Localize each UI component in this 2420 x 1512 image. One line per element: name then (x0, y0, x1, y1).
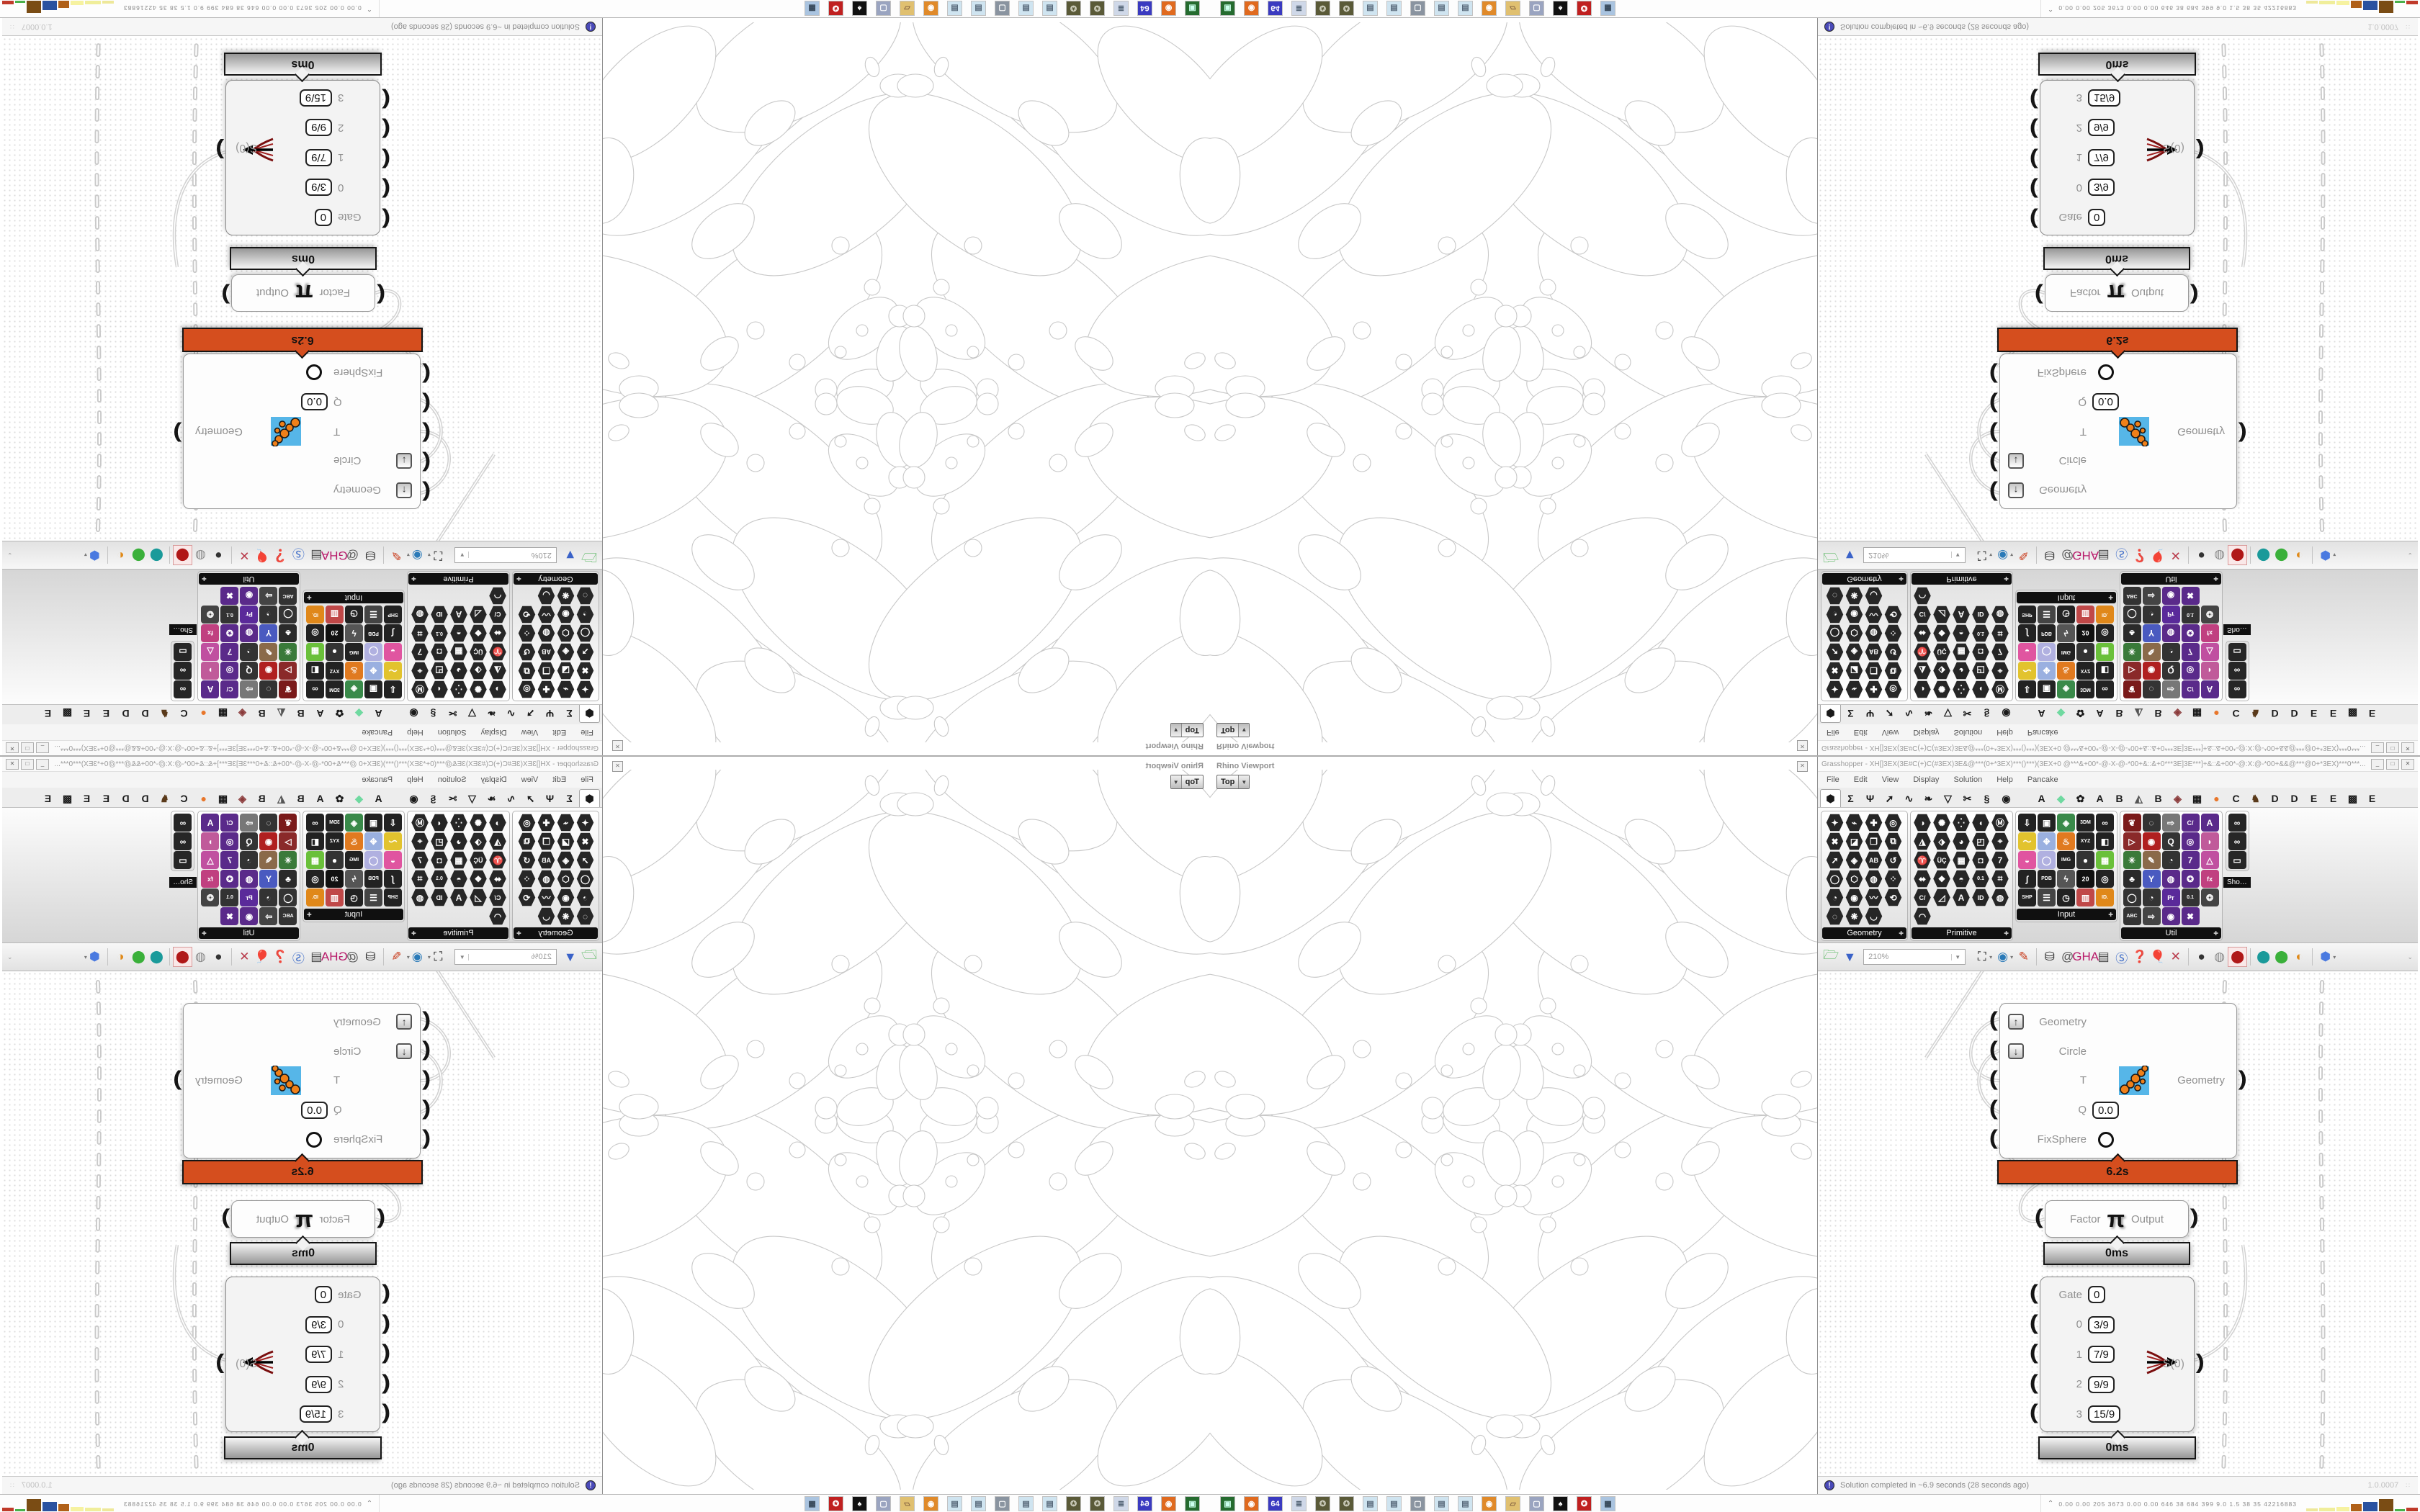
palette-icon[interactable]: ▥ (2076, 606, 2094, 624)
fixsphere-component[interactable]: ( ↑ Geometry ( ↓ Circle ( T (183, 354, 421, 509)
palette-icon[interactable]: ◰ (431, 662, 449, 680)
zoom-combobox[interactable]: 210% ▼ (1863, 949, 1966, 965)
palette-icon[interactable]: ◯ (1826, 870, 1844, 888)
toolbar-icon[interactable]: ❓ (272, 948, 290, 966)
palette-icon[interactable]: ▣ (2038, 680, 2056, 698)
palette-icon[interactable]: Ⓜ (411, 680, 429, 698)
palette-icon[interactable]: ⇨ (241, 814, 259, 832)
palette-group-label[interactable]: Primitive✚ (1912, 573, 2012, 585)
input-hook[interactable]: ( (2035, 282, 2043, 306)
gate-row-value[interactable]: 0 (2088, 1286, 2105, 1303)
stream-gate-component[interactable]: (Gate0(03/9(17/9(29/9(315/9 S(0) ) (2040, 80, 2195, 235)
palette-icon[interactable]: ➚ (576, 643, 594, 661)
stream-gate-component[interactable]: (Gate0(03/9(17/9(29/9(315/9 S(0) ) (225, 1277, 380, 1432)
tab-intersect[interactable]: ✂ (443, 790, 462, 807)
palette-group-label[interactable]: Geometry✚ (1822, 927, 1906, 939)
palette-icon[interactable]: △ (2201, 643, 2219, 661)
palette-icon[interactable]: 〰 (537, 888, 555, 906)
palette-icon[interactable]: Pr (2162, 606, 2180, 624)
palette-icon[interactable]: ⬌ (489, 870, 507, 888)
pi-component[interactable]: ( Factor π Output ) (231, 274, 375, 312)
palette-icon[interactable]: ❖ (1933, 870, 1951, 888)
palette-icon[interactable]: ◎ (2096, 870, 2114, 888)
palette-icon[interactable]: 〜 (384, 662, 402, 680)
taskbar-app-icon[interactable]: ≣ (1291, 1, 1307, 16)
taskbar-app-icon[interactable]: ▤ (1018, 1496, 1034, 1511)
maximize-button[interactable]: □ (2386, 743, 2399, 754)
tab-curve[interactable]: ∿ (1899, 705, 1919, 722)
toolbar-icon[interactable]: ✕ (236, 948, 254, 966)
toolbar-icon[interactable]: ⬢ (2316, 546, 2334, 564)
tab-curve[interactable]: ∿ (1899, 790, 1919, 807)
palette-icon[interactable]: ❋ (557, 907, 575, 925)
toolbar-icon[interactable]: ● (2192, 948, 2210, 966)
palette-icon[interactable]: ID. (2096, 888, 2114, 906)
palette-icon[interactable]: ◔ (1826, 888, 1844, 906)
palette-icon[interactable]: 〰 (1865, 888, 1883, 906)
palette-icon[interactable]: ⧉ (518, 662, 536, 680)
expand-icon[interactable]: ✚ (1899, 930, 1904, 937)
taskbar-app-icon[interactable]: 64 (1137, 1496, 1152, 1511)
palette-icon[interactable]: ID (431, 606, 449, 624)
taskbar-app-icon[interactable]: ✪ (1339, 1496, 1354, 1511)
tab-plugin[interactable]: A (310, 790, 330, 807)
taskbar-app-icon[interactable]: ✪ (1066, 1, 1081, 16)
palette-icon[interactable]: ∫ (2018, 870, 2036, 888)
chevron-down-icon[interactable]: ▼ (460, 954, 469, 960)
tab-display[interactable]: ◉ (404, 705, 423, 722)
palette-icon[interactable]: 7 (221, 643, 239, 661)
toolbar-icon[interactable]: Ⓢ (2112, 948, 2130, 966)
input-hook[interactable]: ( (2030, 147, 2038, 171)
taskbar-app-icon[interactable]: ♠ (852, 1, 867, 16)
palette-icon[interactable]: ◧ (306, 832, 324, 850)
palette-icon[interactable]: ◷ (2057, 888, 2075, 906)
chevron-down-icon[interactable]: ▼ (460, 552, 469, 559)
tab-plugin[interactable]: ◆ (349, 790, 369, 807)
menu-item-file[interactable]: File (1827, 728, 1839, 737)
palette-icon[interactable]: ♣ (2123, 624, 2141, 642)
open-file-icon[interactable]: 🗁 (581, 544, 597, 566)
taskbar-app-icon[interactable]: ◉ (923, 1, 938, 16)
palette-icon[interactable]: ▦ (2096, 643, 2114, 661)
palette-icon[interactable]: ◓ (1953, 870, 1971, 888)
palette-icon[interactable]: fx (2201, 624, 2219, 642)
palette-icon[interactable]: C/ (2182, 814, 2200, 832)
toolbar-icon[interactable]: ▤ (308, 546, 326, 564)
palette-icon[interactable]: ⇩ (2018, 814, 2036, 832)
toolbar-icon[interactable]: ▤ (2094, 546, 2112, 564)
palette-icon[interactable]: ❒ (537, 662, 555, 680)
expand-icon[interactable]: ✚ (411, 576, 416, 582)
taskbar-app-icon[interactable]: ◉ (1482, 1, 1497, 16)
close-icon[interactable]: ✕ (612, 761, 623, 772)
palette-icon[interactable]: ✺ (470, 680, 488, 698)
palette-icon[interactable]: Ⓜ (1991, 814, 2009, 832)
palette-icon[interactable]: ÜÇ (1933, 643, 1951, 661)
palette-icon[interactable]: ▷ (2123, 662, 2141, 680)
palette-icon[interactable]: ◑ (489, 814, 507, 832)
taskbar-app-icon[interactable]: ▤ (1363, 1496, 1378, 1511)
input-hook[interactable]: ( (2030, 1311, 2038, 1335)
zoom-combobox[interactable]: 210% ▼ (1863, 547, 1966, 563)
palette-icon[interactable]: ✪ (2182, 624, 2200, 642)
palette-icon[interactable]: ⌗ (1991, 624, 2009, 642)
palette-icon[interactable]: ◯ (279, 606, 297, 624)
tab-plugin[interactable]: ◆ (349, 705, 369, 722)
toolbar-dropdown-icon[interactable]: ▾ (407, 552, 410, 559)
input-hook[interactable]: ( (382, 1341, 390, 1365)
palette-icon[interactable]: Y (260, 624, 278, 642)
taskbar-app-icon[interactable]: ▱ (1505, 1496, 1520, 1511)
output-hook[interactable]: ) (2196, 1351, 2205, 1374)
palette-icon[interactable]: ∫ (2018, 624, 2036, 642)
palette-icon[interactable]: XYZ (2076, 832, 2094, 850)
viewport-name-button[interactable]: Top ▼ (1170, 723, 1204, 737)
palette-icon[interactable]: ● (326, 643, 344, 661)
grasshopper-canvas[interactable]: ( ↑ Geometry ( ↓ Circle ( T (1818, 971, 2418, 1476)
tab-plugin[interactable]: B (2110, 790, 2129, 807)
palette-icon[interactable]: ◕ (450, 832, 468, 850)
expand-icon[interactable]: ✚ (307, 912, 312, 918)
palette-icon[interactable]: ☰ (2038, 606, 2056, 624)
palette-icon[interactable]: ▣ (2038, 814, 2056, 832)
gate-row-value[interactable]: 15/9 (2088, 1405, 2120, 1423)
palette-icon[interactable]: ◗ (2201, 662, 2219, 680)
palette-icon[interactable]: ▦ (450, 643, 468, 661)
toolbar-overflow-icon[interactable]: ⌄ (7, 953, 13, 961)
palette-icon[interactable]: ◠ (489, 907, 507, 925)
palette-icon[interactable]: ♨ (345, 662, 363, 680)
save-file-icon[interactable]: ▼ (564, 548, 577, 563)
palette-icon[interactable]: ⟲ (518, 606, 536, 624)
input-hook[interactable]: ( (382, 1311, 390, 1335)
taskbar-app-icon[interactable]: ✪ (828, 1, 843, 16)
palette-icon[interactable]: ▷ (2123, 832, 2141, 850)
palette-icon[interactable]: ◕ (1953, 832, 1971, 850)
tab-plugin[interactable]: D (116, 790, 135, 807)
palette-icon[interactable]: ✦ (1826, 680, 1844, 698)
palette-icon[interactable]: ⁘ (1884, 870, 1902, 888)
palette-icon[interactable]: 7 (2182, 851, 2200, 869)
taskbar-app-icon[interactable]: ▣ (1185, 1496, 1200, 1511)
tab-sets[interactable]: Ψ (1860, 790, 1880, 807)
palette-icon[interactable]: ◉ (2162, 907, 2180, 925)
palette-icon[interactable]: ◯ (576, 624, 594, 642)
palette-icon[interactable]: ✖ (2182, 907, 2200, 925)
palette-icon[interactable]: 7 (2182, 643, 2200, 661)
gate-row-value[interactable]: 7/9 (2088, 1346, 2115, 1363)
tab-transform[interactable]: § (1977, 790, 1996, 807)
tab-display[interactable]: ◉ (404, 790, 423, 807)
gate-row-value[interactable]: 0 (315, 1286, 332, 1303)
palette-icon[interactable]: ϟ (2057, 870, 2075, 888)
palette-icon[interactable]: ◷ (345, 888, 363, 906)
palette-icon[interactable]: ❂ (202, 606, 220, 624)
palette-icon[interactable]: ✪ (2182, 870, 2200, 888)
chevron-down-icon[interactable]: ▼ (1238, 724, 1249, 737)
toolbar-icon[interactable]: ✎ (2015, 948, 2033, 966)
palette-icon[interactable]: ◯ (364, 643, 382, 661)
taskbar-app-icon[interactable]: ✪ (1090, 1, 1105, 16)
tab-plugin[interactable]: B (291, 705, 310, 722)
toolbar-dropdown-icon[interactable]: ▾ (2010, 954, 2013, 960)
input-hook[interactable]: ( (422, 1126, 431, 1150)
expand-icon[interactable]: ✚ (1899, 576, 1904, 582)
palette-icon[interactable]: ⬗ (1933, 662, 1951, 680)
output-hook[interactable]: ) (2190, 1206, 2199, 1230)
palette-icon[interactable]: XYZ (2076, 662, 2094, 680)
palette-icon[interactable]: ∞ (174, 680, 192, 698)
boolean-port-icon[interactable] (306, 1132, 322, 1148)
toolbar-icon[interactable]: 🎈 (254, 546, 272, 564)
palette-icon[interactable]: Q (241, 662, 259, 680)
input-hook[interactable]: ( (2030, 1371, 2038, 1395)
taskbar-app-icon[interactable]: ▦ (805, 1, 820, 16)
palette-icon[interactable]: SHP (2018, 888, 2036, 906)
palette-icon[interactable]: ◉ (1845, 606, 1863, 624)
palette-icon[interactable]: ↺ (518, 851, 536, 869)
palette-icon[interactable]: ◈ (2057, 680, 2075, 698)
tab-mesh[interactable]: ▽ (462, 705, 482, 722)
tab-plugin[interactable]: E (77, 790, 97, 807)
palette-icon[interactable]: 0.1 (2182, 606, 2200, 624)
palette-icon[interactable]: SHP (2018, 606, 2036, 624)
tab-plugin[interactable]: D (2265, 790, 2285, 807)
boolean-port-icon[interactable] (2098, 1132, 2114, 1148)
palette-icon[interactable]: ⌁ (557, 680, 575, 698)
palette-icon[interactable]: ✳ (2123, 643, 2141, 661)
tab-plugin[interactable]: A (310, 705, 330, 722)
palette-icon[interactable]: ◔ (576, 606, 594, 624)
palette-icon[interactable]: ⇨ (241, 680, 259, 698)
resize-grip-icon[interactable]: ∷ (2406, 1482, 2411, 1490)
palette-icon[interactable]: △ (202, 851, 220, 869)
toolbar-icon[interactable]: ⬢ (86, 948, 104, 966)
tab-plugin[interactable]: ◈ (233, 705, 252, 722)
palette-icon[interactable]: A (202, 814, 220, 832)
tab-vector[interactable]: ➚ (1880, 790, 1899, 807)
palette-icon[interactable]: ◰ (1972, 832, 1990, 850)
tab-plugin[interactable]: B (291, 790, 310, 807)
taskbar-app-icon[interactable]: ✪ (828, 1496, 843, 1511)
palette-icon[interactable]: 〰 (1865, 606, 1883, 624)
toolbar-icon[interactable]: GHA (2076, 546, 2094, 564)
taskbar-app-icon[interactable]: ✪ (1339, 1, 1354, 16)
palette-icon[interactable]: ϟ (345, 870, 363, 888)
tab-plugin[interactable]: C (2226, 705, 2246, 722)
output-hook[interactable]: ) (215, 138, 224, 161)
tab-plugin[interactable]: B (252, 705, 272, 722)
pi-component[interactable]: ( Factor π Output ) (231, 1200, 375, 1238)
palette-icon[interactable]: ◧ (2096, 662, 2114, 680)
palette-icon[interactable]: ▥ (326, 888, 344, 906)
expand-icon[interactable]: ✚ (2108, 912, 2113, 918)
resize-grip-icon[interactable]: ∷ (9, 23, 14, 31)
taskbar-app-icon[interactable]: ▤ (1363, 1, 1378, 16)
output-hook[interactable]: ) (2238, 1068, 2247, 1092)
chevron-down-icon[interactable]: ▼ (1951, 954, 1960, 960)
palette-icon[interactable]: ◎ (2096, 624, 2114, 642)
arrow-down-button[interactable]: ↓ (2008, 453, 2024, 469)
palette-icon[interactable]: ABC (279, 587, 297, 605)
palette-icon[interactable]: ◕ (1953, 662, 1971, 680)
palette-icon[interactable]: XYZ (326, 832, 344, 850)
palette-icon[interactable]: ⬌ (1914, 870, 1932, 888)
palette-icon[interactable]: 0.1 (1972, 870, 1990, 888)
input-hook[interactable]: ( (382, 117, 390, 141)
palette-icon[interactable]: PDB (2038, 624, 2056, 642)
toolbar-icon[interactable]: ⛶ (1973, 948, 1991, 966)
input-hook[interactable]: ( (422, 450, 431, 474)
palette-icon[interactable]: ◑ (489, 680, 507, 698)
palette-icon[interactable]: ID. (2096, 606, 2114, 624)
zoom-combobox[interactable]: 210% ▼ (454, 949, 557, 965)
palette-icon[interactable]: ❂ (2201, 888, 2219, 906)
tab-plugin[interactable]: ▩ (2343, 705, 2362, 722)
palette-icon[interactable]: IMG (345, 851, 363, 869)
expand-icon[interactable]: ✚ (2004, 930, 2009, 937)
output-hook[interactable]: ) (2196, 138, 2205, 161)
palette-icon[interactable]: XYZ (326, 662, 344, 680)
palette-icon[interactable]: ∞ (2096, 680, 2114, 698)
palette-icon[interactable]: ✥ (364, 662, 382, 680)
menu-item-display[interactable]: Display (481, 775, 507, 784)
taskbar-app-icon[interactable]: ◉ (1161, 1, 1176, 16)
palette-icon[interactable]: ♈ (1914, 643, 1932, 661)
palette-icon[interactable]: Pr (2162, 888, 2180, 906)
gate-row-value[interactable]: 15/9 (2088, 89, 2120, 107)
palette-icon[interactable]: ◒ (2018, 851, 2036, 869)
palette-icon[interactable]: ↺ (1884, 851, 1902, 869)
taskbar-app-icon[interactable]: ✪ (1315, 1496, 1330, 1511)
toolbar-icon[interactable]: ● (2192, 546, 2210, 564)
palette-icon[interactable]: ◍ (537, 624, 555, 642)
palette-icon[interactable]: ◗ (202, 662, 220, 680)
palette-icon[interactable]: ❖ (470, 870, 488, 888)
fixsphere-component[interactable]: ( ↑ Geometry ( ↓ Circle ( T (183, 1003, 421, 1158)
palette-icon[interactable]: ◗ (202, 832, 220, 850)
palette-icon[interactable]: ▦ (450, 851, 468, 869)
palette-icon[interactable]: ✎ (2143, 643, 2161, 661)
palette-icon[interactable]: ◯ (279, 888, 297, 906)
q-value-box[interactable]: 0.0 (301, 393, 328, 410)
palette-icon[interactable]: ◎ (2182, 832, 2200, 850)
palette-group-label[interactable]: Util✚ (199, 573, 299, 585)
palette-icon[interactable]: PDB (2038, 870, 2056, 888)
taskbar-app-icon[interactable]: ♠ (1553, 1496, 1568, 1511)
palette-icon[interactable]: ∞ (306, 680, 324, 698)
q-value-box[interactable]: 0.0 (301, 1102, 328, 1119)
tab-plugin[interactable]: ◈ (233, 790, 252, 807)
palette-icon[interactable]: ⌗ (1991, 870, 2009, 888)
palette-icon[interactable]: 7 (411, 851, 429, 869)
tab-plugin[interactable]: ✿ (2071, 790, 2090, 807)
toolbar-icon[interactable]: ⛁ (2040, 546, 2058, 564)
palette-icon[interactable]: ◌ (2143, 680, 2161, 698)
taskbar-app-icon[interactable]: ▤ (1458, 1, 1473, 16)
toolbar-icon[interactable]: Ⓢ (2112, 546, 2130, 564)
input-hook[interactable]: ( (422, 362, 431, 386)
menu-item-help[interactable]: Help (1996, 728, 2013, 737)
toolbar-icon[interactable]: 🎈 (2148, 546, 2166, 564)
palette-icon[interactable]: ◡ (1865, 907, 1883, 925)
palette-icon[interactable]: ◘ (1972, 851, 1990, 869)
tab-maths[interactable]: Σ (1841, 790, 1860, 807)
palette-icon[interactable]: ▭ (2228, 851, 2246, 869)
palette-icon[interactable]: ◪ (557, 832, 575, 850)
palette-icon[interactable]: ABC (279, 907, 297, 925)
taskbar-app-icon[interactable]: ▢ (1529, 1496, 1544, 1511)
palette-icon[interactable]: ◯ (576, 870, 594, 888)
palette-icon[interactable]: ◔ (576, 888, 594, 906)
palette-group-label[interactable]: Geometry✚ (1822, 573, 1906, 585)
palette-icon[interactable]: ID (1972, 888, 1990, 906)
toolbar-icon[interactable]: ◍ (192, 948, 210, 966)
palette-icon[interactable]: ◯ (2123, 888, 2141, 906)
palette-icon[interactable]: ◘ (431, 851, 449, 869)
palette-icon[interactable]: ⇨ (2143, 907, 2161, 925)
palette-icon[interactable]: ◌ (260, 680, 278, 698)
palette-icon[interactable]: ◰ (1972, 662, 1990, 680)
q-value-box[interactable]: 0.0 (2092, 1102, 2119, 1119)
toolbar-icon[interactable]: ⬤ (148, 546, 166, 564)
menu-item-help[interactable]: Help (407, 775, 423, 784)
palette-icon[interactable]: ∞ (2228, 680, 2246, 698)
palette-icon[interactable]: ✖ (576, 832, 594, 850)
palette-icon[interactable]: ✖ (221, 587, 239, 605)
taskbar-app-icon[interactable]: ▤ (1434, 1, 1449, 16)
stream-gate-component[interactable]: (Gate0(03/9(17/9(29/9(315/9 S(0) ) (225, 80, 380, 235)
palette-icon[interactable]: ⧉ (1884, 662, 1902, 680)
palette-icon[interactable]: ◡ (537, 587, 555, 605)
close-button[interactable]: ✕ (6, 759, 19, 770)
toolbar-icon[interactable]: ● (210, 546, 228, 564)
viewport-name-button[interactable]: Top ▼ (1170, 775, 1204, 789)
palette-icon[interactable]: PDB (364, 624, 382, 642)
palette-icon[interactable]: ❖ (470, 624, 488, 642)
tab-plugin[interactable]: ✿ (330, 705, 349, 722)
palette-icon[interactable]: ID (431, 888, 449, 906)
palette-icon[interactable]: ◓ (450, 870, 468, 888)
palette-icon[interactable]: AB (1865, 643, 1883, 661)
palette-icon[interactable]: ⇩ (384, 814, 402, 832)
arrow-down-button[interactable]: ↓ (396, 453, 412, 469)
palette-icon[interactable]: Q (2162, 662, 2180, 680)
palette-icon[interactable]: ✺ (1933, 814, 1951, 832)
grasshopper-canvas[interactable]: ( ↑ Geometry ( ↓ Circle ( T (1818, 36, 2418, 541)
palette-icon[interactable]: ✥ (2038, 832, 2056, 850)
input-hook[interactable]: ( (382, 1371, 390, 1395)
expand-icon[interactable]: ✚ (2213, 576, 2218, 582)
palette-icon[interactable]: ◖ (431, 814, 449, 832)
palette-icon[interactable]: ♈ (489, 643, 507, 661)
taskbar-app-icon[interactable]: ▤ (1458, 1496, 1473, 1511)
palette-group-label[interactable]: Input✚ (304, 909, 403, 920)
palette-icon[interactable]: ▦ (1953, 643, 1971, 661)
menu-item-file[interactable]: File (581, 775, 593, 784)
menu-item-view[interactable]: View (521, 728, 539, 737)
grasshopper-titlebar[interactable]: Grasshopper - XH[]3EX(3E#C(+)C(#3EX)3E&@… (2, 757, 602, 772)
tab-params[interactable]: ⬢ (579, 789, 600, 807)
tab-plugin[interactable]: D (116, 705, 135, 722)
palette-icon[interactable]: ÜÇ (1933, 851, 1951, 869)
tab-vector[interactable]: ➚ (521, 790, 540, 807)
palette-icon[interactable]: ◈ (1845, 851, 1863, 869)
palette-icon[interactable]: ∞ (2096, 814, 2114, 832)
palette-icon[interactable]: A (1953, 888, 1971, 906)
toolbar-icon[interactable]: ⬤ (148, 948, 166, 966)
